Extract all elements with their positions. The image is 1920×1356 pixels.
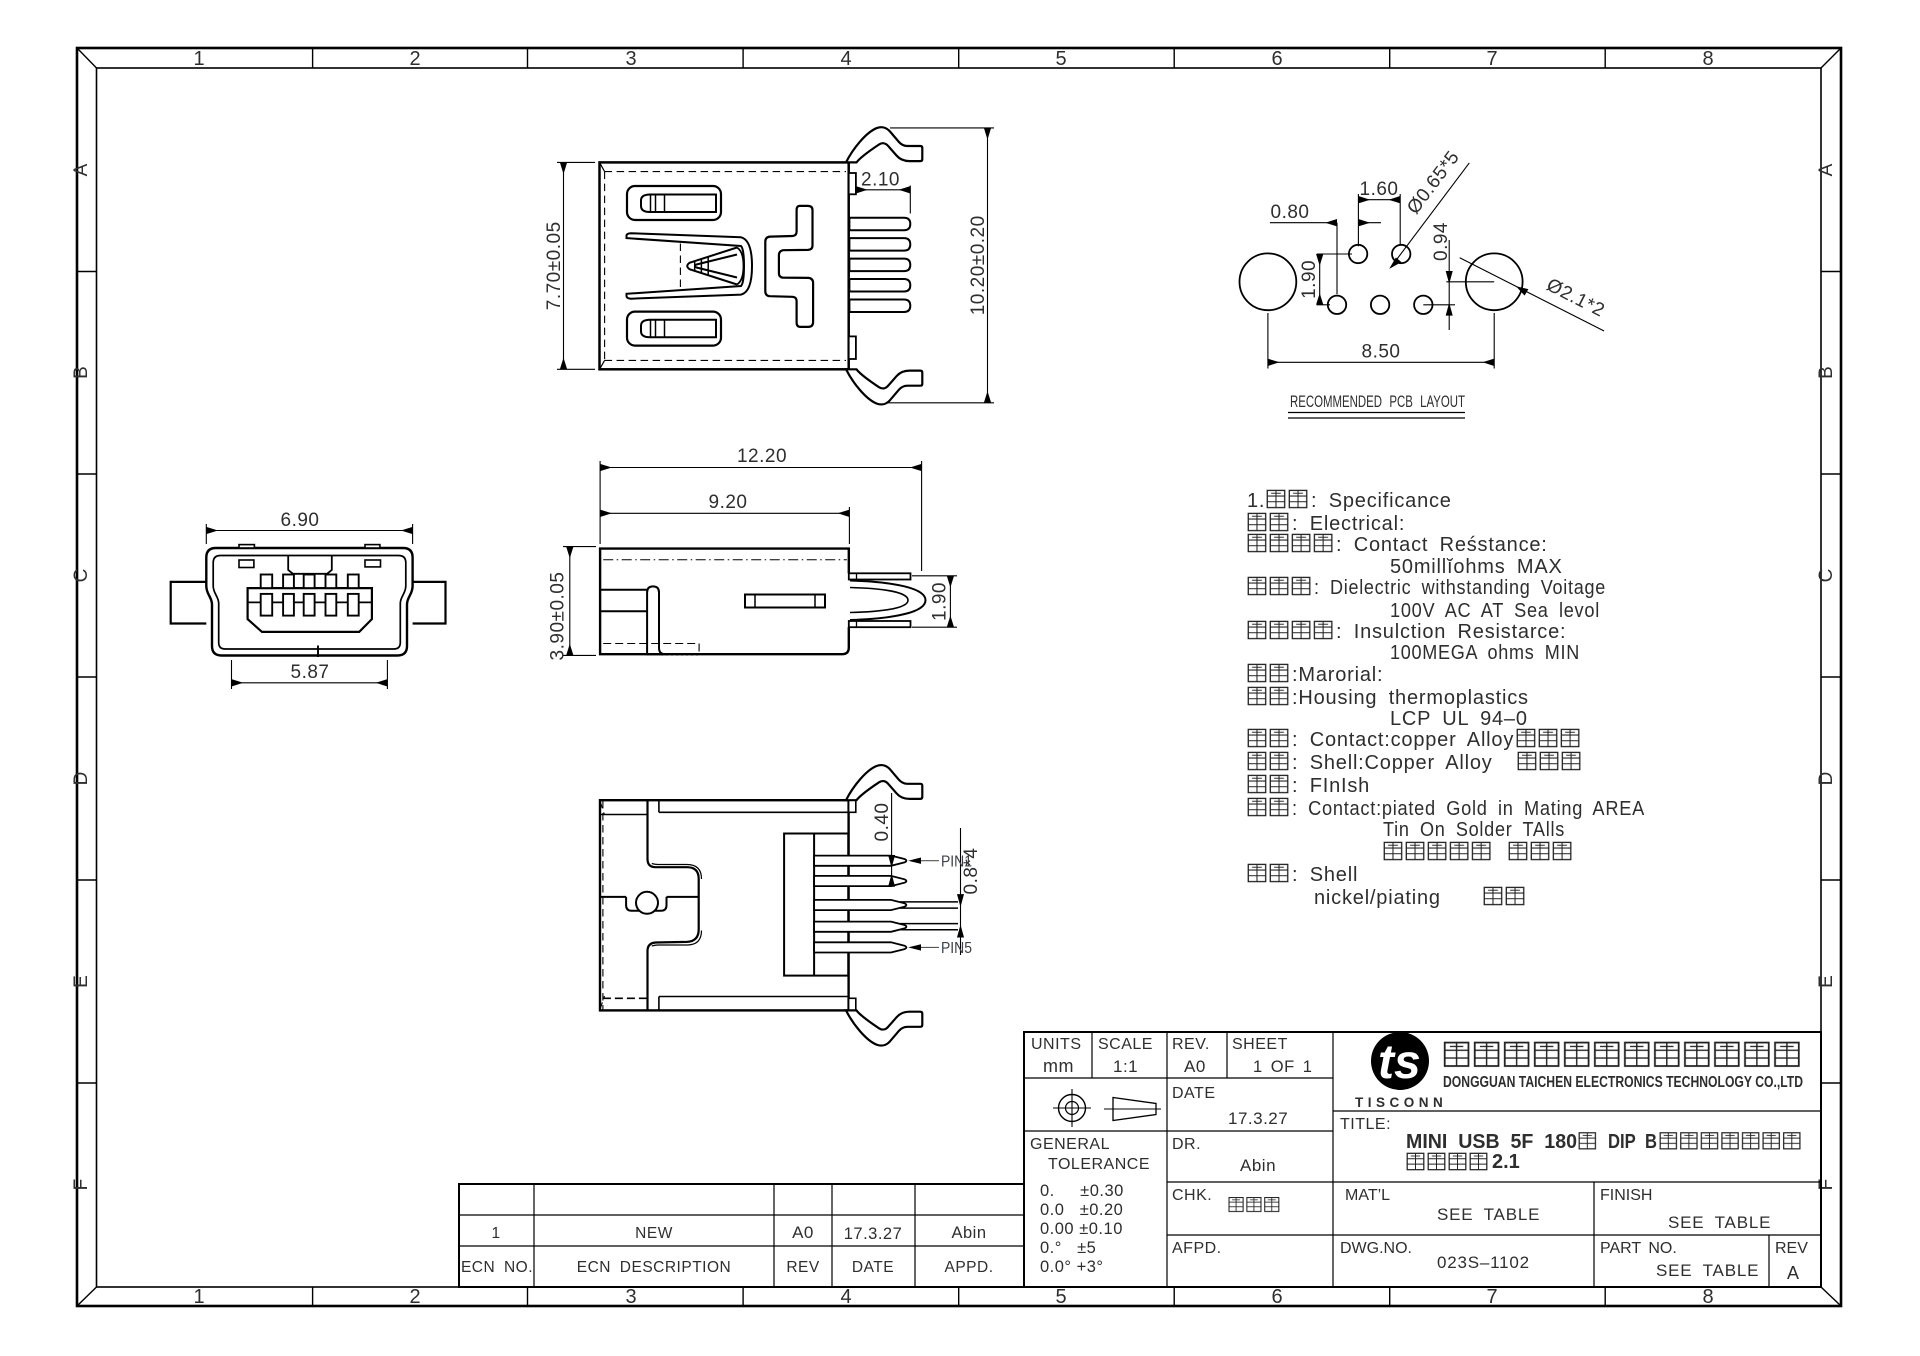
svg-text:0.° ±5: 0.° ±5 [1040, 1239, 1096, 1257]
svg-text:6: 6 [1271, 1286, 1282, 1308]
svg-text:REV.: REV. [1172, 1036, 1210, 1053]
svg-text:0.0° +3°: 0.0° +3° [1040, 1258, 1104, 1276]
svg-text:0.40: 0.40 [872, 803, 893, 842]
svg-text:PART NO.: PART NO. [1600, 1240, 1677, 1257]
svg-text:5.87: 5.87 [291, 662, 330, 683]
svg-text:PIN5: PIN5 [941, 940, 972, 957]
svg-text:023S–1102: 023S–1102 [1437, 1253, 1530, 1272]
svg-text:A0: A0 [792, 1223, 814, 1242]
svg-text:A: A [71, 163, 92, 176]
svg-text:E: E [71, 975, 92, 988]
svg-text:50millĭohms MAX: 50millĭohms MAX [1390, 556, 1563, 578]
svg-text:7: 7 [1486, 48, 1497, 70]
svg-text:4: 4 [840, 1286, 851, 1308]
svg-text:: Contact:piated Gold in Matin: : Contact:piated Gold in Mating AREA [1292, 798, 1645, 820]
svg-text:TISCONN: TISCONN [1355, 1095, 1447, 1110]
svg-text:4: 4 [840, 48, 851, 70]
svg-text:2: 2 [409, 1286, 420, 1308]
svg-text:10.20±0.20: 10.20±0.20 [968, 215, 989, 315]
svg-text:NEW: NEW [635, 1225, 673, 1242]
svg-text:C: C [1816, 569, 1837, 583]
svg-text:REV: REV [1775, 1240, 1808, 1257]
svg-text:1: 1 [193, 1286, 204, 1308]
svg-text:FINISH: FINISH [1600, 1187, 1652, 1204]
svg-text:: Contact:copper Alloy: : Contact:copper Alloy [1292, 729, 1514, 751]
svg-text:DIP B: DIP B [1608, 1131, 1657, 1153]
svg-text:SEE TABLE: SEE TABLE [1437, 1205, 1540, 1224]
svg-text:: Shell:Copper Alloy: : Shell:Copper Alloy [1292, 752, 1493, 774]
svg-text:SCALE: SCALE [1098, 1036, 1153, 1053]
svg-text:Tin On Solder TAlls: Tin On Solder TAlls [1383, 819, 1565, 841]
svg-text:CHK.: CHK. [1172, 1187, 1212, 1204]
svg-text:1.60: 1.60 [1360, 179, 1399, 200]
svg-text:6.90: 6.90 [281, 510, 320, 531]
svg-text:B: B [71, 366, 92, 379]
svg-text:C: C [71, 569, 92, 583]
svg-text:SEE TABLE: SEE TABLE [1668, 1213, 1771, 1232]
svg-text::Housing thermoplastics: :Housing thermoplastics [1292, 687, 1529, 709]
svg-text:Abin: Abin [1240, 1156, 1276, 1175]
svg-text:ECN DESCRIPTION: ECN DESCRIPTION [577, 1259, 731, 1276]
svg-text:0.00 ±0.10: 0.00 ±0.10 [1040, 1220, 1123, 1238]
svg-text:: Contact Reśstance:: : Contact Reśstance: [1336, 534, 1548, 556]
svg-text:100V AC AT Sea levol: 100V AC AT Sea levol [1390, 600, 1600, 622]
svg-text:MAT’L: MAT’L [1345, 1187, 1390, 1204]
svg-text:: Insulction Resistarce:: : Insulction Resistarce: [1336, 621, 1566, 643]
svg-text:0. ±0.30: 0. ±0.30 [1040, 1182, 1124, 1200]
svg-text:7: 7 [1486, 1286, 1497, 1308]
svg-text:APPD.: APPD. [944, 1259, 993, 1276]
svg-text:: Shell: : Shell [1292, 864, 1358, 886]
svg-text:B: B [1816, 366, 1837, 379]
svg-text:mm: mm [1043, 1056, 1074, 1076]
svg-text:E: E [1816, 975, 1837, 988]
svg-text:F: F [1816, 1179, 1837, 1191]
svg-text:: Electrical:: : Electrical: [1292, 513, 1405, 535]
svg-text:12.20: 12.20 [737, 446, 787, 467]
svg-text:1.90: 1.90 [930, 582, 951, 621]
svg-text:LCP UL 94–0: LCP UL 94–0 [1390, 708, 1528, 730]
svg-text:3.90±0.05: 3.90±0.05 [548, 572, 569, 661]
svg-text:100MEGA ohms MІN: 100MEGA ohms MІN [1390, 642, 1580, 664]
svg-text:5: 5 [1055, 1286, 1066, 1308]
svg-text:: Specificance: : Specificance [1311, 490, 1452, 512]
svg-text:A: A [1787, 1263, 1799, 1283]
svg-text:Ø2.1*2: Ø2.1*2 [1543, 275, 1608, 322]
svg-text:0.80: 0.80 [1271, 202, 1310, 223]
svg-text:5: 5 [1055, 48, 1066, 70]
svg-text:F: F [71, 1179, 92, 1191]
svg-text:D: D [1816, 772, 1837, 786]
svg-text:2.10: 2.10 [861, 170, 900, 191]
svg-text:7.70±0.05: 7.70±0.05 [544, 221, 565, 310]
svg-text:8.50: 8.50 [1362, 342, 1401, 363]
svg-text:17.3.27: 17.3.27 [844, 1225, 903, 1243]
svg-text:TITLE:: TITLE: [1340, 1116, 1391, 1133]
svg-text:SHEET: SHEET [1232, 1036, 1288, 1053]
svg-text:1: 1 [193, 48, 204, 70]
svg-text:nickel/piating: nickel/piating [1314, 887, 1441, 909]
svg-text::Marorial:: :Marorial: [1292, 664, 1383, 686]
svg-text:8: 8 [1702, 1286, 1713, 1308]
svg-text:A0: A0 [1184, 1057, 1206, 1076]
svg-text:6: 6 [1271, 48, 1282, 70]
svg-text:D: D [71, 772, 92, 786]
svg-text:1.90: 1.90 [1299, 260, 1320, 299]
svg-text:ts: ts [1378, 1036, 1421, 1089]
svg-text:1.: 1. [1247, 490, 1265, 512]
svg-text:SEE TABLE: SEE TABLE [1656, 1261, 1759, 1280]
svg-text:GENERAL: GENERAL [1030, 1136, 1110, 1153]
svg-text:1 OF 1: 1 OF 1 [1253, 1058, 1312, 1076]
svg-text:DATE: DATE [1172, 1085, 1215, 1102]
svg-text:1:1: 1:1 [1113, 1057, 1138, 1076]
svg-text:3: 3 [625, 1286, 636, 1308]
svg-text:: Dielectric withstanding Voit: : Dielectric withstanding Voitage [1314, 577, 1606, 599]
svg-text:RECOMMENDED PCB LAYOUT: RECOMMENDED PCB LAYOUT [1290, 393, 1465, 411]
svg-text:1: 1 [491, 1225, 500, 1242]
svg-text:0.94: 0.94 [1431, 222, 1452, 261]
svg-text:17.3.27: 17.3.27 [1228, 1109, 1288, 1128]
svg-text:Abin: Abin [951, 1224, 986, 1242]
svg-text:TOLERANCE: TOLERANCE [1048, 1156, 1150, 1173]
svg-text:9.20: 9.20 [709, 492, 748, 513]
svg-text:DWG.NO.: DWG.NO. [1340, 1240, 1412, 1257]
svg-text:A: A [1816, 163, 1837, 176]
svg-text:3: 3 [625, 48, 636, 70]
svg-text:MINI USB 5F 180: MINI USB 5F 180 [1406, 1131, 1577, 1153]
svg-text:DONGGUAN TAICHEN ELECTRONICS T: DONGGUAN TAICHEN ELECTRONICS TECHNOLOGY … [1443, 1074, 1803, 1091]
svg-text:2.1: 2.1 [1492, 1151, 1520, 1173]
svg-text:AFPD.: AFPD. [1172, 1240, 1222, 1257]
svg-text:2: 2 [409, 48, 420, 70]
svg-text:8: 8 [1702, 48, 1713, 70]
svg-text:UNITS: UNITS [1031, 1036, 1082, 1053]
svg-text:0.0 ±0.20: 0.0 ±0.20 [1040, 1201, 1123, 1219]
svg-text:DATE: DATE [852, 1259, 894, 1276]
svg-text:DR.: DR. [1172, 1136, 1201, 1153]
svg-text:ECN NO.: ECN NO. [461, 1259, 533, 1276]
svg-text:PIN1: PIN1 [941, 854, 972, 871]
svg-text:: FInIsh: : FInIsh [1292, 775, 1370, 797]
svg-text:REV: REV [786, 1259, 820, 1276]
